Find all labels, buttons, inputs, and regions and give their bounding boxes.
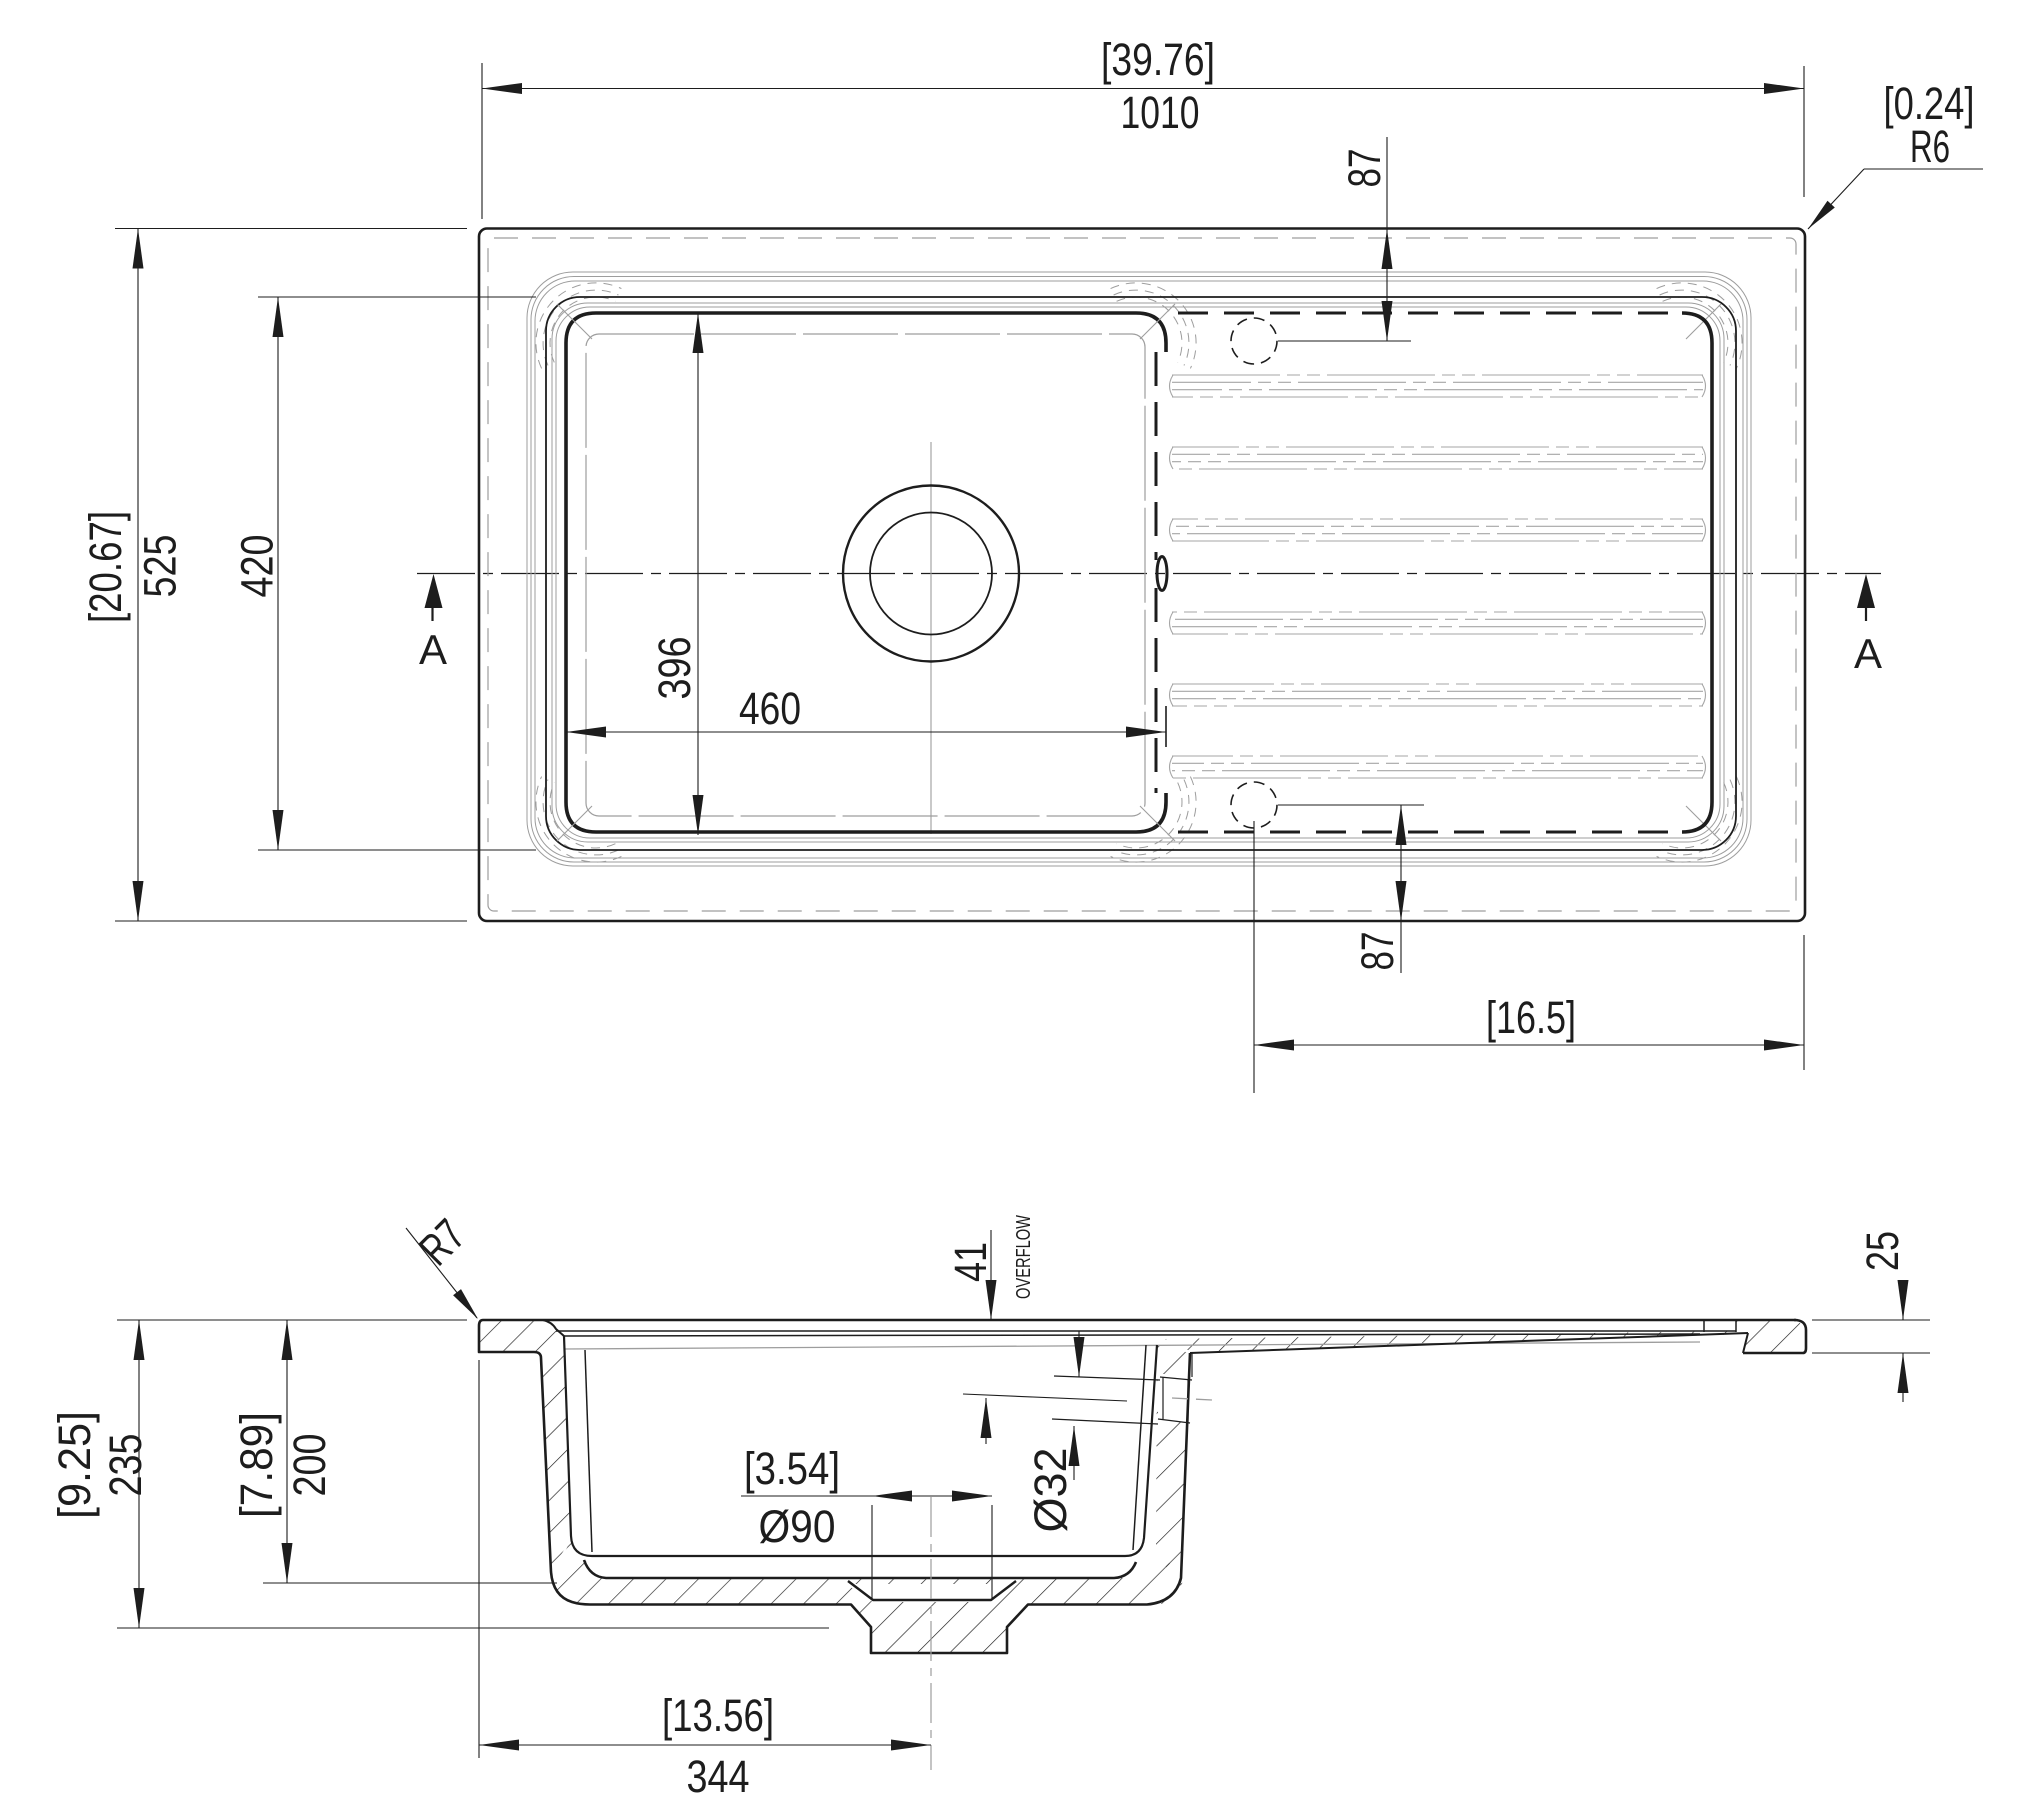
svg-text:[13.56]: [13.56]	[662, 1690, 774, 1741]
svg-text:[20.67]: [20.67]	[80, 511, 131, 623]
svg-text:R6: R6	[1910, 121, 1950, 172]
svg-text:235: 235	[100, 1434, 151, 1497]
svg-text:41: 41	[945, 1242, 996, 1282]
svg-text:460: 460	[739, 683, 801, 734]
svg-text:[3.54]: [3.54]	[744, 1443, 840, 1494]
svg-text:25: 25	[1857, 1231, 1908, 1271]
svg-text:[9.25]: [9.25]	[49, 1411, 100, 1519]
svg-text:420: 420	[232, 535, 283, 598]
svg-text:[39.76]: [39.76]	[1101, 34, 1215, 85]
svg-text:87: 87	[1352, 932, 1403, 971]
svg-text:Ø90: Ø90	[759, 1501, 836, 1552]
svg-text:[7.89]: [7.89]	[231, 1412, 282, 1518]
svg-text:A: A	[419, 626, 447, 673]
svg-text:1010: 1010	[1121, 87, 1200, 138]
svg-text:[16.5]: [16.5]	[1486, 992, 1576, 1043]
svg-text:Ø32: Ø32	[1025, 1448, 1076, 1533]
svg-text:200: 200	[284, 1434, 335, 1497]
svg-text:344: 344	[687, 1751, 750, 1802]
svg-text:87: 87	[1339, 149, 1390, 188]
svg-text:OVERFLOW: OVERFLOW	[1013, 1215, 1035, 1299]
svg-text:396: 396	[649, 637, 700, 700]
svg-text:525: 525	[135, 535, 186, 598]
svg-text:A: A	[1854, 630, 1882, 677]
